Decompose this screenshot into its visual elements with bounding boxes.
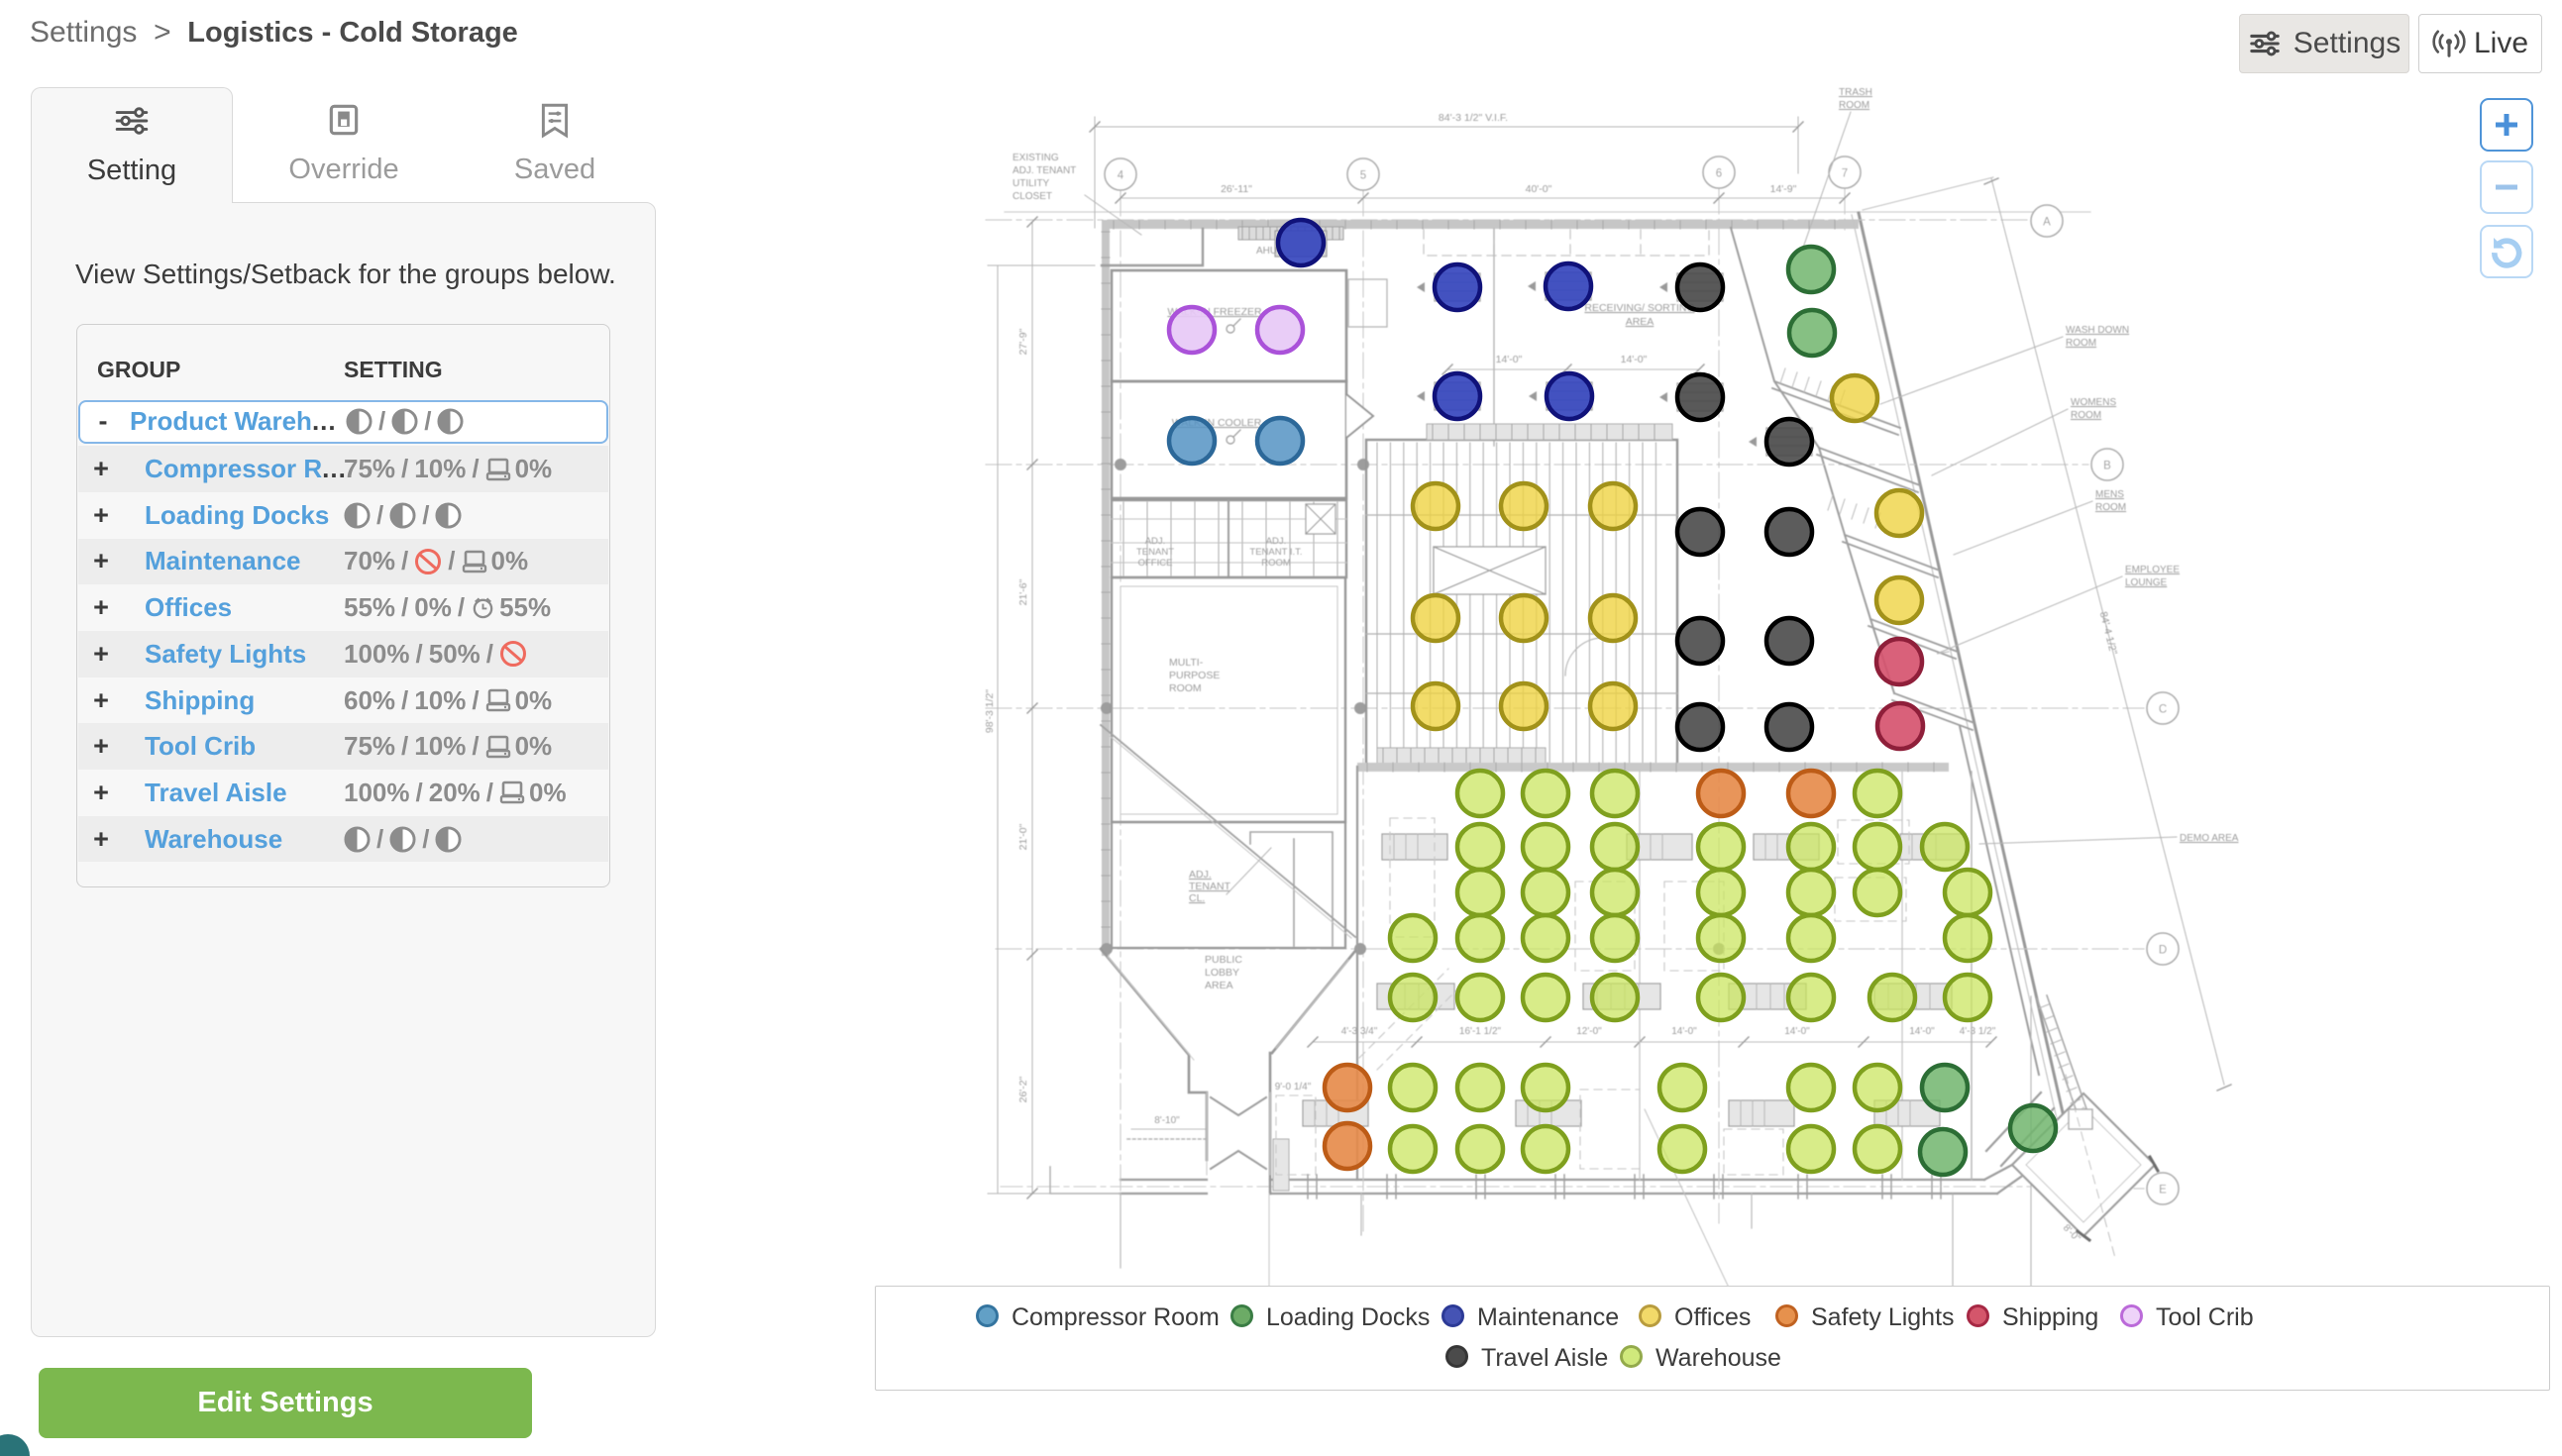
svg-text:TENANT: TENANT xyxy=(1189,881,1231,892)
svg-text:TRASH: TRASH xyxy=(1839,87,1872,98)
svg-text:UTILITY: UTILITY xyxy=(1013,178,1050,189)
svg-text:EMPLOYEE: EMPLOYEE xyxy=(2125,565,2180,575)
svg-text:ROOM: ROOM xyxy=(2095,502,2126,513)
svg-text:4: 4 xyxy=(1118,170,1124,182)
svg-text:21'-0": 21'-0" xyxy=(1017,823,1029,850)
svg-text:98'-3 1/2": 98'-3 1/2" xyxy=(984,689,996,734)
svg-text:26'-11": 26'-11" xyxy=(1221,183,1252,195)
svg-text:5: 5 xyxy=(1360,170,1366,182)
svg-text:4'-3 1/2": 4'-3 1/2" xyxy=(1960,1026,1996,1037)
svg-text:TENANT: TENANT xyxy=(1136,547,1174,558)
svg-text:27'-9": 27'-9" xyxy=(1017,328,1029,355)
svg-text:AREA: AREA xyxy=(1205,980,1233,991)
svg-text:12'-0": 12'-0" xyxy=(1576,1026,1602,1037)
svg-text:ROOM: ROOM xyxy=(1261,558,1291,569)
svg-text:ROOM: ROOM xyxy=(2071,410,2101,421)
svg-text:RECEIVING/ SORTING: RECEIVING/ SORTING xyxy=(1584,302,1694,314)
svg-text:D: D xyxy=(2159,945,2167,957)
svg-text:B: B xyxy=(2103,461,2111,472)
svg-text:CLOSET: CLOSET xyxy=(1013,191,1052,202)
svg-text:DEMO AREA: DEMO AREA xyxy=(2180,833,2239,844)
svg-text:CL.: CL. xyxy=(1189,892,1205,904)
svg-text:14'-0": 14'-0" xyxy=(1621,354,1648,365)
svg-text:C: C xyxy=(2159,704,2167,716)
svg-text:7: 7 xyxy=(1842,168,1848,180)
svg-text:ROOM: ROOM xyxy=(2066,338,2096,349)
svg-text:84'-4 1/2": 84'-4 1/2" xyxy=(2097,610,2119,656)
svg-text:WASH DOWN: WASH DOWN xyxy=(2066,325,2129,336)
svg-text:LOBBY: LOBBY xyxy=(1205,967,1239,979)
svg-text:ADJ.: ADJ. xyxy=(1266,536,1287,547)
svg-text:MENS: MENS xyxy=(2095,489,2124,500)
svg-text:PURPOSE: PURPOSE xyxy=(1169,670,1220,681)
svg-text:ADJ.: ADJ. xyxy=(1189,869,1212,881)
svg-text:ROOM: ROOM xyxy=(1169,682,1202,694)
svg-text:AHU: AHU xyxy=(1256,246,1277,257)
svg-text:ROOM: ROOM xyxy=(1839,100,1869,111)
svg-text:9'-0 1/4": 9'-0 1/4" xyxy=(1275,1082,1312,1092)
svg-text:E: E xyxy=(2159,1185,2167,1196)
svg-text:14'-9": 14'-9" xyxy=(1770,183,1797,195)
svg-text:TENANT I.T.: TENANT I.T. xyxy=(1249,547,1302,558)
svg-text:4'-3 3/4": 4'-3 3/4" xyxy=(1341,1026,1378,1037)
svg-text:14'-0": 14'-0" xyxy=(1496,354,1523,365)
svg-text:EXISTING: EXISTING xyxy=(1013,153,1059,163)
svg-text:40'-0": 40'-0" xyxy=(1526,183,1552,195)
svg-text:16'-1 1/2": 16'-1 1/2" xyxy=(1459,1026,1502,1037)
svg-text:AREA: AREA xyxy=(1626,316,1655,328)
svg-text:14'-0": 14'-0" xyxy=(1784,1026,1810,1037)
svg-text:26'-2": 26'-2" xyxy=(1017,1076,1029,1102)
svg-text:ADJ. TENANT: ADJ. TENANT xyxy=(1013,165,1076,176)
svg-text:14'-0": 14'-0" xyxy=(1909,1026,1935,1037)
svg-text:ADJ.: ADJ. xyxy=(1145,536,1166,547)
svg-text:PUBLIC: PUBLIC xyxy=(1205,954,1242,966)
svg-text:OFFICE: OFFICE xyxy=(1138,558,1173,569)
svg-text:6: 6 xyxy=(1716,168,1722,180)
svg-text:21'-6": 21'-6" xyxy=(1017,578,1029,605)
svg-text:A: A xyxy=(2043,217,2051,229)
svg-text:WOMENS: WOMENS xyxy=(2071,397,2116,408)
svg-text:MULTI-: MULTI- xyxy=(1169,657,1204,669)
svg-text:84'-3 1/2" V.I.F.: 84'-3 1/2" V.I.F. xyxy=(1439,112,1508,124)
svg-text:14'-0": 14'-0" xyxy=(1671,1026,1697,1037)
svg-text:8'-10": 8'-10" xyxy=(1154,1115,1180,1126)
svg-text:LOUNGE: LOUNGE xyxy=(2125,577,2168,588)
